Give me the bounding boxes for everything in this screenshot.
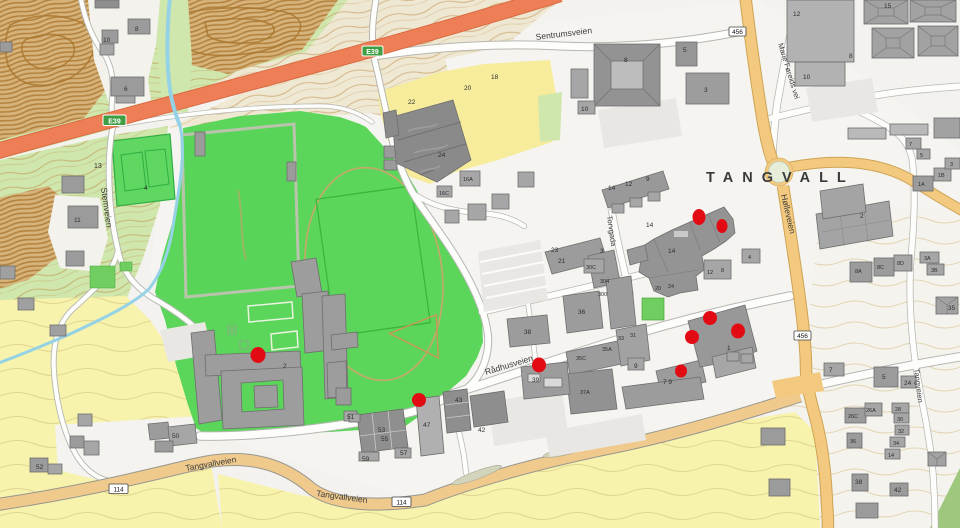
- svg-text:15: 15: [884, 3, 892, 10]
- svg-text:35: 35: [948, 305, 956, 312]
- svg-text:2: 2: [860, 213, 864, 220]
- svg-text:456: 456: [797, 333, 808, 340]
- svg-text:52: 52: [36, 464, 44, 471]
- svg-text:8: 8: [849, 53, 853, 60]
- svg-text:35A: 35A: [602, 347, 612, 353]
- svg-text:26A: 26A: [866, 408, 876, 414]
- svg-text:55: 55: [381, 436, 389, 443]
- svg-text:3: 3: [704, 87, 708, 94]
- svg-text:8C: 8C: [877, 265, 884, 271]
- svg-text:35C: 35C: [576, 356, 586, 362]
- svg-text:31: 31: [630, 333, 636, 339]
- svg-text:42: 42: [894, 487, 902, 494]
- svg-text:12: 12: [793, 11, 801, 18]
- svg-text:9: 9: [646, 176, 650, 183]
- svg-text:12: 12: [625, 181, 633, 188]
- svg-text:300: 300: [598, 292, 607, 298]
- svg-text:114: 114: [396, 500, 407, 507]
- svg-text:8D: 8D: [897, 261, 904, 267]
- svg-text:36: 36: [578, 309, 586, 316]
- svg-text:14: 14: [608, 185, 616, 192]
- svg-text:28: 28: [895, 407, 901, 413]
- svg-text:59: 59: [362, 456, 370, 463]
- svg-text:30C: 30C: [586, 265, 596, 271]
- svg-text:3B: 3B: [931, 268, 938, 274]
- svg-text:37A: 37A: [580, 390, 590, 396]
- svg-text:20: 20: [655, 286, 661, 292]
- svg-text:5: 5: [920, 153, 923, 159]
- svg-text:1B: 1B: [938, 173, 945, 179]
- svg-text:304: 304: [600, 279, 609, 285]
- svg-text:23: 23: [551, 247, 559, 254]
- svg-text:36: 36: [850, 439, 856, 445]
- svg-text:7: 7: [829, 367, 833, 374]
- svg-text:8: 8: [721, 268, 724, 274]
- svg-text:10: 10: [803, 74, 811, 81]
- svg-text:38: 38: [855, 479, 863, 486]
- svg-text:5: 5: [882, 374, 886, 381]
- svg-text:38: 38: [524, 329, 532, 336]
- svg-text:5: 5: [683, 47, 687, 54]
- svg-text:53: 53: [378, 427, 386, 434]
- svg-text:114: 114: [113, 487, 124, 494]
- svg-text:4: 4: [144, 185, 148, 192]
- svg-text:32: 32: [898, 429, 904, 435]
- svg-text:22: 22: [408, 99, 416, 106]
- svg-text:11: 11: [74, 217, 81, 224]
- svg-text:16C: 16C: [439, 191, 449, 197]
- svg-text:13: 13: [94, 163, 102, 170]
- svg-text:4: 4: [748, 255, 751, 261]
- svg-text:3: 3: [950, 162, 953, 168]
- svg-text:20: 20: [464, 85, 472, 92]
- svg-text:16A: 16A: [463, 177, 473, 183]
- svg-text:42: 42: [478, 427, 486, 434]
- svg-text:10: 10: [103, 37, 111, 44]
- svg-text:33: 33: [618, 336, 624, 342]
- svg-text:7: 7: [909, 142, 912, 148]
- svg-text:3A: 3A: [924, 256, 931, 262]
- svg-text:2: 2: [283, 363, 287, 370]
- svg-text:TANGVALL: TANGVALL: [706, 170, 855, 186]
- svg-text:21: 21: [558, 258, 566, 265]
- svg-text:12: 12: [707, 270, 713, 276]
- svg-text:14: 14: [668, 248, 676, 255]
- svg-text:1: 1: [727, 345, 731, 352]
- svg-text:456: 456: [732, 29, 743, 36]
- svg-text:E39: E39: [108, 119, 121, 126]
- svg-text:57: 57: [400, 450, 408, 457]
- svg-text:24: 24: [904, 380, 912, 387]
- svg-text:24: 24: [438, 152, 446, 159]
- svg-text:8A: 8A: [855, 269, 862, 275]
- svg-text:18: 18: [491, 74, 499, 81]
- svg-text:8: 8: [135, 26, 139, 33]
- svg-text:51: 51: [347, 414, 355, 421]
- svg-text:9: 9: [634, 363, 638, 370]
- svg-text:E39: E39: [366, 49, 379, 56]
- svg-text:14: 14: [646, 222, 654, 229]
- svg-text:24: 24: [668, 284, 674, 290]
- svg-text:14: 14: [888, 453, 894, 459]
- svg-text:6: 6: [124, 86, 128, 93]
- svg-text:47: 47: [423, 422, 431, 429]
- svg-text:7 9: 7 9: [663, 379, 672, 386]
- svg-text:1A: 1A: [918, 182, 925, 188]
- svg-text:26C: 26C: [848, 414, 858, 420]
- svg-text:30: 30: [897, 417, 903, 423]
- svg-text:34: 34: [893, 441, 899, 447]
- svg-text:39: 39: [532, 377, 540, 384]
- svg-text:10: 10: [581, 106, 589, 113]
- svg-text:50: 50: [172, 433, 180, 440]
- svg-text:8: 8: [624, 57, 628, 64]
- svg-text:43: 43: [455, 397, 463, 404]
- svg-text:3: 3: [600, 248, 604, 255]
